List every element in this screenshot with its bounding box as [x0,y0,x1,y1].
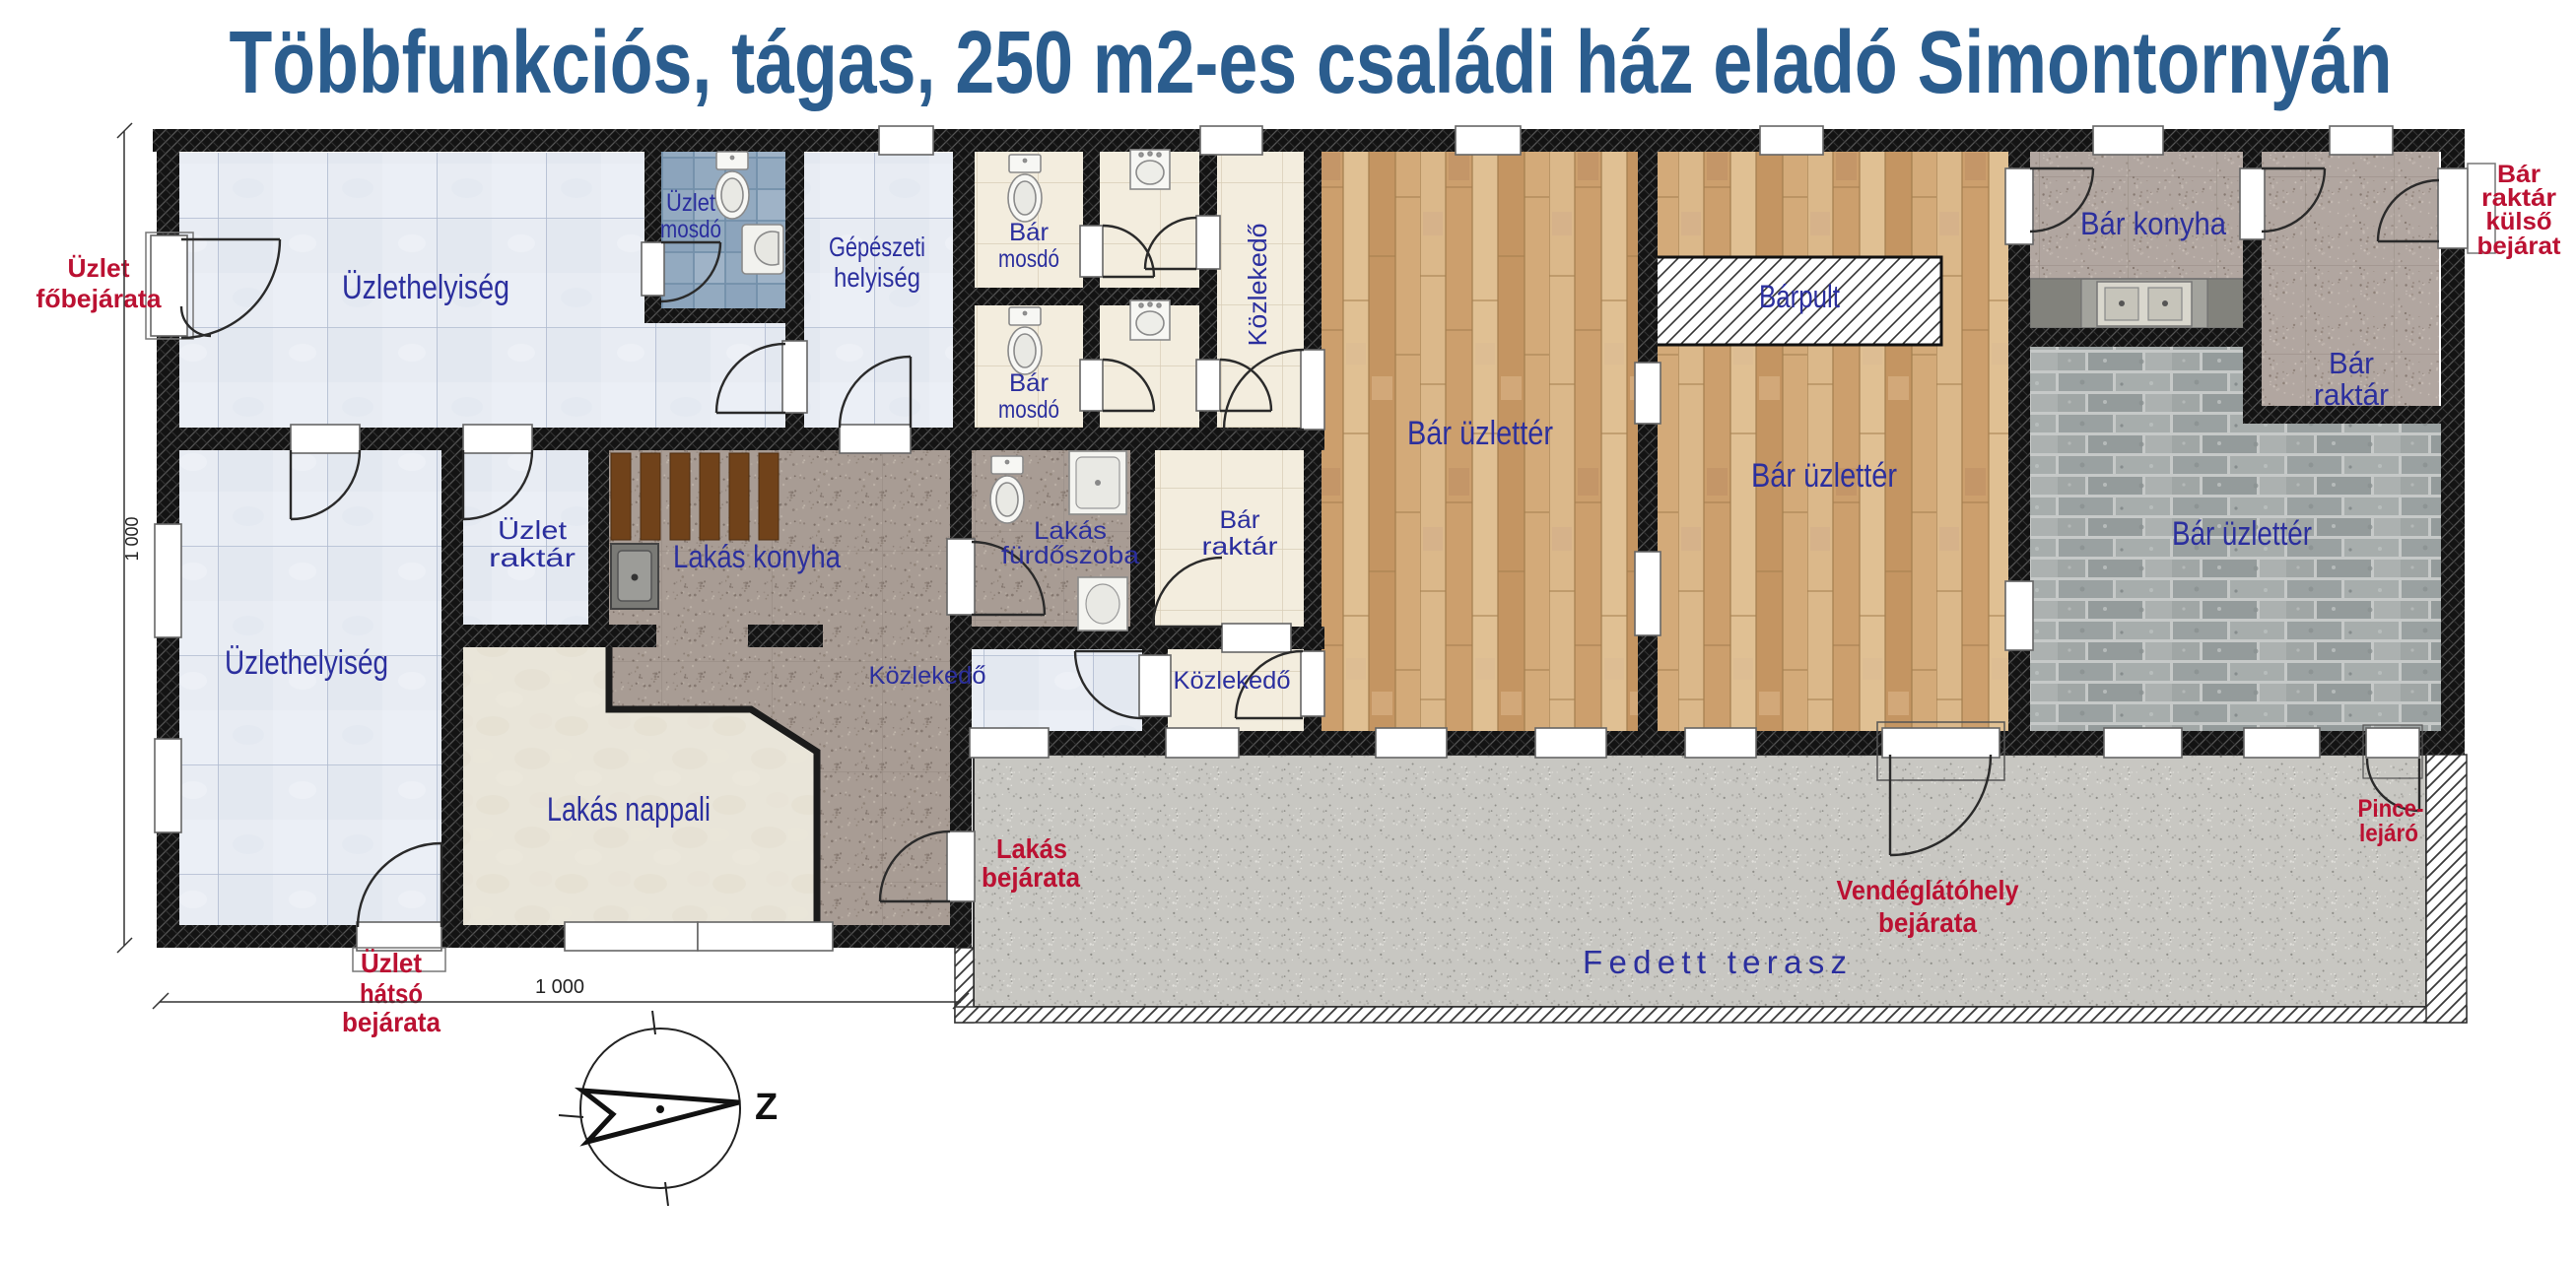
svg-text:Bár: Bár [1009,369,1049,397]
svg-text:1 000: 1 000 [122,516,142,561]
svg-text:Fedett terasz: Fedett terasz [1583,944,1847,980]
svg-text:Z: Z [755,1087,778,1128]
svg-text:Bár: Bár [2329,346,2374,380]
svg-text:hátsó: hátsó [360,978,423,1009]
svg-text:mosdó: mosdó [998,396,1059,424]
svg-text:Bár: Bár [1009,219,1049,246]
svg-text:Bár: Bár [1220,506,1260,534]
svg-text:Üzlethelyiség: Üzlethelyiség [342,269,509,306]
svg-text:Közlekedő: Közlekedő [1243,224,1272,347]
svg-text:Bár konyha: Bár konyha [2080,206,2226,241]
svg-text:bejárata: bejárata [342,1007,441,1037]
svg-text:külső: külső [2486,208,2552,235]
svg-text:Vendéglátóhely: Vendéglátóhely [1837,875,2019,905]
svg-text:Gépészeti: Gépészeti [829,232,925,262]
svg-text:1 000: 1 000 [535,976,584,998]
svg-text:Üzlet: Üzlet [498,515,568,545]
svg-text:bejárat: bejárat [2477,232,2562,260]
svg-text:fürdőszoba: fürdőszoba [1001,542,1139,569]
svg-text:raktár: raktár [2314,377,2389,412]
svg-text:Többfunkciós, tágas, 250 m2-es: Többfunkciós, tágas, 250 m2-es családi h… [230,14,2393,112]
svg-text:helyiség: helyiség [834,262,920,293]
svg-text:Pince-: Pince- [2358,795,2424,823]
svg-text:raktár: raktár [1202,533,1278,561]
svg-text:Üzlet: Üzlet [68,253,130,283]
svg-text:bejárata: bejárata [1878,907,1977,938]
svg-text:Közlekedő: Közlekedő [869,662,986,690]
svg-text:Bárpult: Bárpult [1759,279,1840,314]
svg-text:Üzlethelyiség: Üzlethelyiség [225,644,388,682]
svg-text:Üzlet: Üzlet [361,948,422,978]
svg-text:Bár üzlettér: Bár üzlettér [2172,515,2312,553]
svg-text:mosdó: mosdó [998,245,1059,273]
svg-text:mosdó: mosdó [660,216,721,243]
svg-text:Lakás: Lakás [1034,517,1107,545]
svg-text:Üzlet: Üzlet [666,189,715,217]
svg-text:Lakás konyha: Lakás konyha [673,539,841,574]
svg-text:lejáró: lejáró [2359,820,2418,847]
svg-text:főbejárata: főbejárata [36,284,163,313]
svg-text:Közlekedő: Közlekedő [1174,667,1291,695]
svg-text:Bár üzlettér: Bár üzlettér [1751,457,1897,495]
svg-text:Bár üzlettér: Bár üzlettér [1407,415,1553,452]
svg-text:Lakás: Lakás [996,833,1067,864]
svg-text:raktár: raktár [489,543,576,572]
svg-text:Lakás nappali: Lakás nappali [547,791,711,829]
svg-text:bejárata: bejárata [982,862,1080,893]
